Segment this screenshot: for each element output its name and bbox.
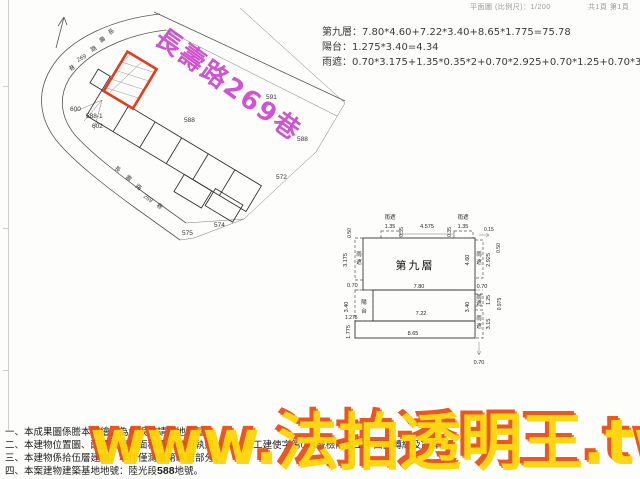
canopy-label: 雨	[476, 294, 482, 301]
floor-title: 第九層	[396, 258, 435, 272]
balcony-label: 台	[361, 307, 367, 315]
floor-plan-ninth-floor: 第九層 雨遮 1.35 0.35 4.575 0.35 雨遮 1.35 0.15…	[343, 202, 513, 387]
canopy-left	[355, 238, 363, 280]
dim-label: 0.70	[477, 284, 488, 290]
calc-line-floor9: 第九層：7.80*4.60+7.22*3.40+8.65*1.775=75.78	[322, 25, 640, 40]
dim-label: 3.15	[486, 319, 492, 330]
calc-line-balcony: 陽台：1.275*3.40=4.34	[322, 40, 640, 55]
dim-label: 0.70	[347, 283, 358, 289]
canopy-label: 雨遮	[384, 213, 396, 221]
parcel-label: 588	[184, 117, 195, 124]
canopy-label: 雨	[356, 251, 362, 258]
dim-label: 1.35	[458, 224, 469, 230]
canopy-top-right	[454, 231, 473, 238]
road-char: 巷	[155, 201, 165, 211]
parcel-label: 588-1	[86, 113, 103, 120]
dim-label: 4.575	[420, 224, 434, 230]
road-char: 269	[142, 194, 154, 205]
dim-arrow-bottom	[477, 342, 481, 355]
road-char: 路	[134, 182, 144, 192]
dim-label: 0.50	[496, 243, 502, 253]
parcel-label: 572	[276, 174, 287, 181]
canopy-label: 遮	[476, 322, 482, 330]
dim-line-top	[400, 232, 454, 236]
dim-label: 0.70	[474, 360, 485, 366]
canopy-label: 遮	[476, 258, 482, 266]
dim-label: 0.50	[347, 228, 353, 238]
road-char: 路	[89, 44, 98, 54]
dim-label: 3.40	[465, 302, 471, 313]
dim-label: 4.60	[465, 255, 471, 266]
watermark-text: www.法拍透明王.tw	[90, 392, 640, 479]
dim-label: 2.925	[486, 253, 492, 267]
road-char: 269	[76, 53, 88, 63]
dim-label: 8.65	[408, 331, 419, 337]
balcony-label: 陽	[361, 298, 367, 306]
canopy-label: 雨	[476, 251, 482, 258]
canopy-label: 遮	[356, 258, 362, 266]
header-scale-text: 平面圖 (比例尺)：1/200	[470, 2, 551, 12]
area-calculations: 第九層：7.80*4.60+7.22*3.40+8.65*1.775=75.78…	[322, 25, 640, 70]
canopy-label: 雨遮	[457, 213, 469, 221]
road-char: 壽	[124, 173, 134, 183]
dim-label: 0.975	[497, 298, 503, 311]
dim-label: 7.80	[414, 284, 425, 290]
dim-label: 3.40	[344, 302, 350, 313]
scanned-survey-document: 平面圖 (比例尺)：1/200 共1頁 第1頁	[0, 0, 640, 479]
dim-label: 1.775	[346, 325, 352, 339]
parcel-label: 574	[214, 222, 225, 229]
calc-line-canopy: 雨遮：0.70*3.175+1.35*0.35*2+0.70*2.925+0.7…	[322, 55, 640, 70]
canopy-top-left	[381, 231, 400, 238]
dim-label: 0.35	[447, 227, 453, 237]
header-page-count: 共1頁 第1頁	[588, 2, 629, 12]
parcel-label: 575	[182, 230, 193, 237]
parcel-label: 588	[297, 136, 308, 143]
page-border-tick	[3, 370, 9, 371]
building-block	[64, 43, 285, 228]
dim-label: 1.275	[345, 315, 358, 321]
subject-parcel-highlight	[104, 52, 157, 109]
dim-arrow-015	[479, 233, 489, 237]
road-char: 長	[113, 165, 122, 174]
canopy-label: 遮	[476, 299, 482, 307]
road-char: 壽	[98, 35, 108, 45]
north-arrow-icon	[56, 17, 67, 48]
road-char: 長	[107, 27, 116, 36]
dim-label: 1.25	[486, 295, 492, 305]
parcel-label: 600	[70, 106, 81, 113]
dim-label: 7.22	[416, 311, 427, 317]
parcel-label: 602	[92, 123, 103, 130]
dim-label: 0.35	[399, 227, 405, 237]
dim-label: 0.15	[484, 227, 494, 233]
canopy-label: 雨	[476, 315, 482, 322]
dim-label: 1.35	[385, 224, 396, 230]
dim-label: 3.175	[343, 253, 349, 267]
canopy-right-upper	[475, 240, 483, 278]
